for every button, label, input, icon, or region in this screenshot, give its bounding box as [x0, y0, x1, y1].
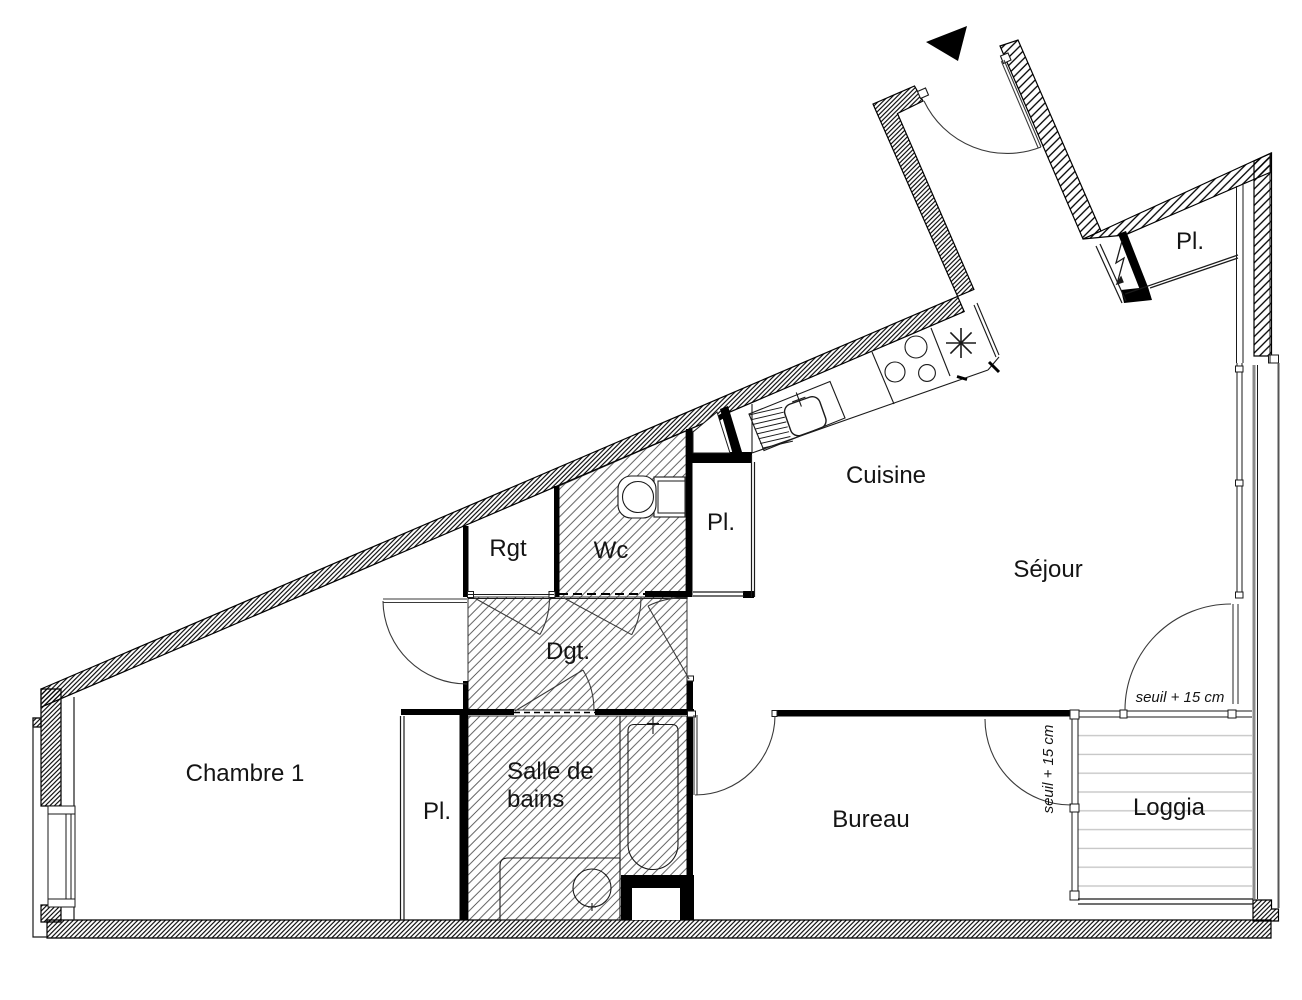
svg-text:seuil + 15 cm: seuil + 15 cm	[1040, 725, 1057, 814]
svg-text:Dgt.: Dgt.	[546, 638, 590, 665]
svg-text:Pl.: Pl.	[423, 798, 451, 825]
svg-text:bains: bains	[507, 786, 564, 813]
svg-text:Chambre 1: Chambre 1	[186, 760, 305, 787]
svg-text:Wc: Wc	[594, 537, 629, 564]
svg-text:Rgt: Rgt	[489, 535, 527, 562]
svg-text:Loggia: Loggia	[1133, 794, 1206, 821]
svg-text:Salle de: Salle de	[507, 758, 594, 785]
svg-text:Bureau: Bureau	[832, 806, 909, 833]
svg-text:Pl.: Pl.	[707, 509, 735, 536]
svg-text:Pl.: Pl.	[1176, 228, 1204, 255]
svg-text:Cuisine: Cuisine	[846, 462, 926, 489]
svg-text:Séjour: Séjour	[1013, 556, 1082, 583]
svg-text:seuil + 15 cm: seuil + 15 cm	[1136, 689, 1225, 706]
